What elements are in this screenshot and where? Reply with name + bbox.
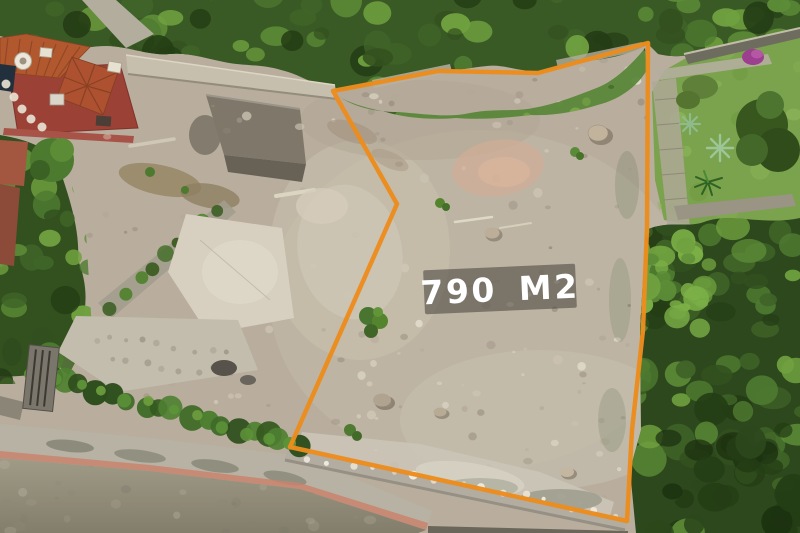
bougainvillea-plant (742, 49, 764, 65)
tree-shadow (598, 388, 626, 452)
area-label-text: 790 M2 (420, 267, 581, 313)
roof-vent (107, 61, 122, 73)
dark-shed (211, 360, 237, 376)
pink-soil-stain (478, 157, 530, 187)
weed-clump (181, 186, 189, 194)
gate-bush (2, 338, 22, 366)
aerial-photo-canvas: 790 M2 (0, 0, 800, 533)
metal-gate (23, 345, 60, 412)
screenshot-root: 790 M2 (0, 0, 800, 533)
dark-shed (240, 375, 256, 385)
roof-vent (40, 47, 53, 57)
area-label: 790 M2 (420, 264, 581, 315)
agave-plant (680, 114, 700, 134)
weed-clump (145, 167, 155, 177)
ac-unit (50, 94, 64, 105)
gate-frame (23, 345, 60, 412)
agave-plant (707, 135, 733, 161)
concrete-slab (296, 188, 348, 224)
tree-shadow (615, 151, 639, 219)
chimney (15, 53, 32, 70)
house-garden-bush (30, 138, 74, 182)
roof-window (96, 116, 112, 127)
tree-shadow (609, 258, 631, 342)
